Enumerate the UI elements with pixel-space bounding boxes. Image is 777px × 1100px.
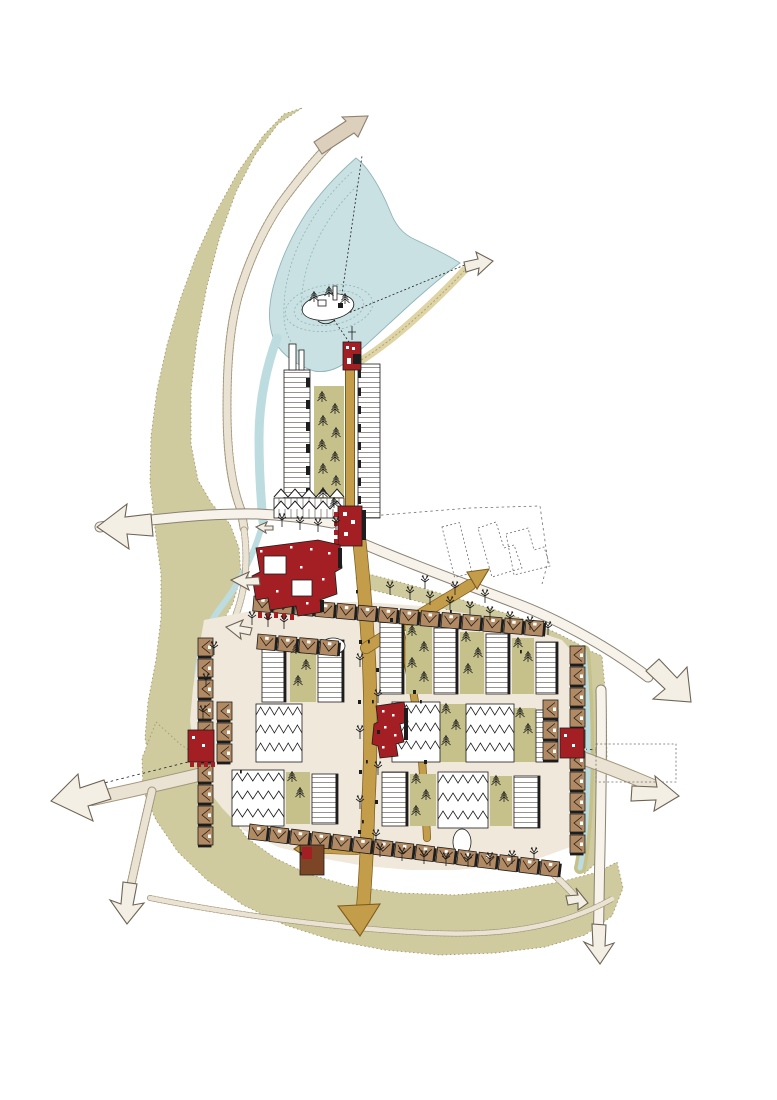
arrow-west-main [97,504,153,549]
phantom-boundary [370,506,548,584]
strip-chimney [299,350,304,370]
arrow-south-spur [110,882,144,924]
terrace-row-east-inner [543,700,558,762]
rust-building-south [300,845,324,875]
street-castle [334,506,366,546]
phantom-block [506,528,550,575]
masterplan-drawing [0,0,777,1100]
lake [269,158,460,372]
red-building-west [188,730,215,767]
terrace-row-west-inner [217,702,232,764]
arrow-north-gateway [314,116,368,154]
arrow-southwest [51,774,111,821]
arrow-viewcone-east [464,252,493,275]
strip-chimney [289,344,296,370]
arrow-southeast-main [646,659,691,702]
lake-tower [343,342,361,370]
red-building-east [560,728,584,758]
masterplan-page [0,0,777,1100]
strip-terrace-east [358,364,380,518]
phantom-block [478,522,522,577]
phantom-block [442,523,472,578]
river-from-lake [259,338,277,522]
